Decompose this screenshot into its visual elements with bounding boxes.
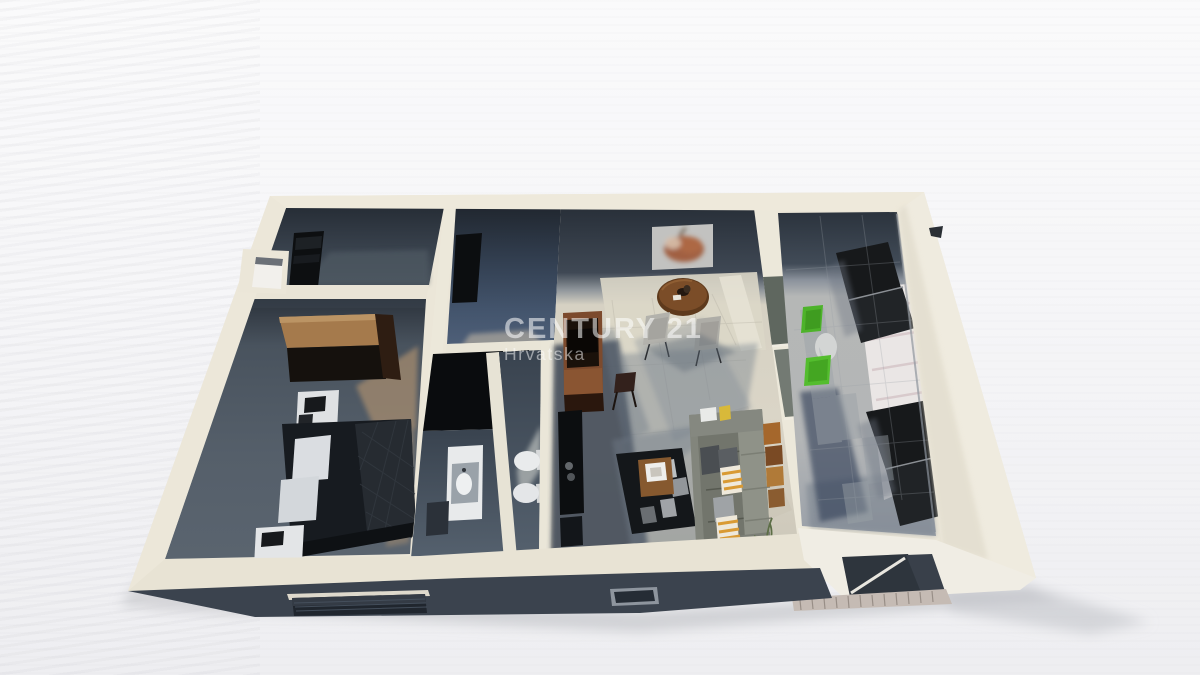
svg-text:CENTURY 21: CENTURY 21: [504, 313, 703, 345]
svg-text:Hrvatska: Hrvatska: [504, 344, 586, 364]
